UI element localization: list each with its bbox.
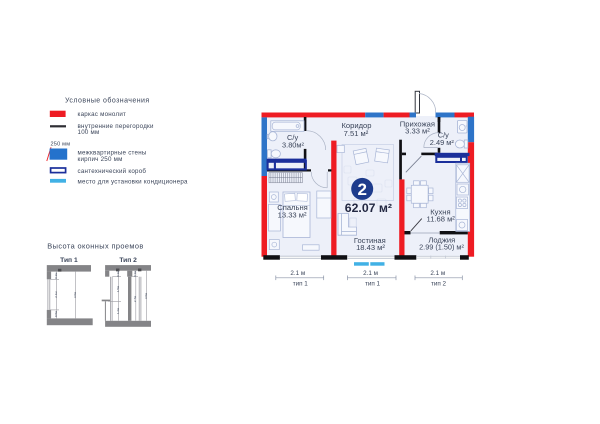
svg-text:тип 2: тип 2	[431, 280, 447, 287]
svg-text:250 мм: 250 мм	[51, 142, 71, 148]
svg-text:1.2м: 1.2м	[116, 308, 120, 314]
svg-text:Тип 1: Тип 1	[60, 257, 78, 264]
svg-text:2: 2	[357, 180, 366, 199]
svg-text:Высота оконных проемов: Высота оконных проемов	[47, 241, 143, 250]
svg-text:кирпич 250 мм: кирпич 250 мм	[78, 156, 123, 163]
svg-text:3.33 м²: 3.33 м²	[405, 127, 430, 136]
svg-text:3.80м²: 3.80м²	[282, 140, 304, 149]
svg-text:62.07 м²: 62.07 м²	[345, 201, 392, 215]
svg-text:место для установки кондиционе: место для установки кондиционера	[78, 179, 189, 186]
svg-text:3.0м: 3.0м	[73, 292, 77, 298]
svg-text:2.1 м: 2.1 м	[430, 270, 445, 277]
svg-text:тип 1: тип 1	[365, 280, 381, 287]
svg-text:13.33 м²: 13.33 м²	[278, 210, 307, 219]
svg-text:Условные обозначения: Условные обозначения	[65, 97, 150, 105]
svg-text:2.7м: 2.7м	[133, 296, 137, 302]
svg-text:1.5м: 1.5м	[116, 286, 120, 292]
svg-text:11.68 м²: 11.68 м²	[427, 215, 456, 224]
svg-text:7.51 м²: 7.51 м²	[344, 129, 369, 138]
svg-text:Тип 2: Тип 2	[119, 257, 137, 264]
svg-text:0.3м: 0.3м	[54, 273, 58, 279]
svg-text:тип 1: тип 1	[293, 280, 309, 287]
svg-text:2.1 м: 2.1 м	[290, 270, 305, 277]
svg-text:2.99 (1.50) м²: 2.99 (1.50) м²	[419, 243, 464, 252]
svg-text:0.8м: 0.8м	[54, 311, 58, 317]
svg-text:0.3м: 0.3м	[116, 271, 120, 277]
svg-text:2.1 м: 2.1 м	[363, 270, 378, 277]
svg-text:каркас монолит: каркас монолит	[78, 111, 127, 118]
svg-text:2.1м: 2.1м	[54, 291, 58, 297]
svg-text:18.43 м²: 18.43 м²	[356, 243, 385, 252]
svg-text:100 мм: 100 мм	[78, 129, 100, 136]
svg-text:сантехнический короб: сантехнический короб	[78, 168, 147, 175]
svg-text:0.3м: 0.3м	[133, 271, 137, 277]
svg-text:3.0м: 3.0м	[144, 293, 148, 299]
svg-text:2.49 м²: 2.49 м²	[430, 138, 455, 147]
